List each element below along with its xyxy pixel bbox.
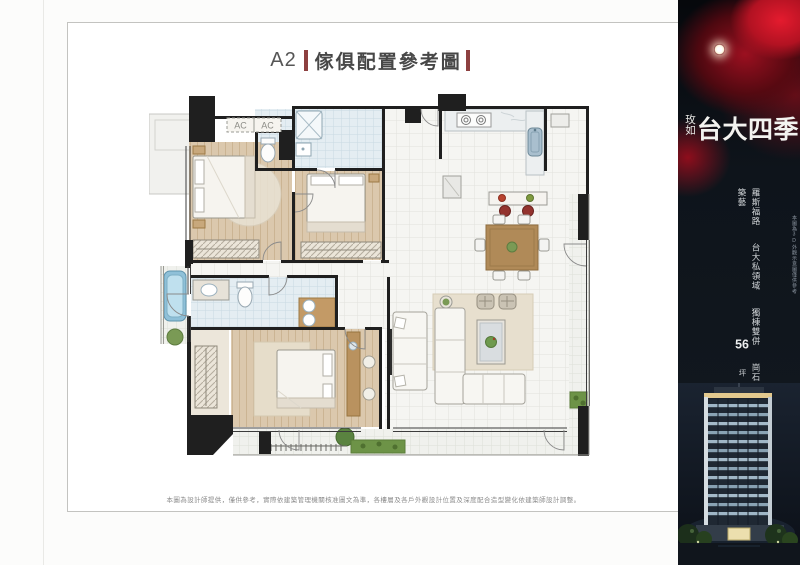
logo-name: 台大四季 — [697, 110, 799, 146]
ac-label-right: AC — [261, 121, 274, 131]
title-separator-bar — [466, 50, 470, 71]
title-text: 傢俱配置參考圖 — [315, 47, 462, 74]
scan-page-edge — [43, 0, 44, 565]
disclaimer-text: 本圖為設計師提供，僅供參考，實際依建築管理機關核准圖文為準，各樓層及各戶外觀設計… — [68, 494, 679, 504]
diamond-jewel-icon — [714, 44, 725, 55]
floorplan-frame: A2 傢俱配置參考圖 — [67, 22, 680, 512]
slogan-line: 羅斯福路 — [751, 188, 761, 226]
ac-label-left: AC — [234, 121, 247, 131]
ac-closet: AC AC — [227, 118, 281, 132]
project-logo: 玫如 台大四季 — [683, 110, 799, 146]
logo-prefix: 玫如 — [683, 114, 695, 135]
floor-plan: AC AC — [149, 94, 623, 471]
slogan-line: 獨棟雙併 — [751, 308, 761, 346]
page-title: A2 傢俱配置參考圖 — [68, 47, 679, 74]
building-night-view — [678, 383, 800, 565]
brand-panel: 玫如 台大四季 羅斯福路 台大私領域 獨棟雙併 崗石築藝 56 坪 68 坪 — [678, 0, 800, 565]
unit-code: A2 — [270, 49, 296, 72]
size-unit: 坪 — [738, 369, 747, 377]
building-render — [678, 383, 800, 565]
building-caption: 本圖為3D外觀示意圖僅供參考 — [791, 215, 798, 294]
slogan-line: 台大私領域 — [751, 243, 761, 291]
size-value: 56 — [735, 338, 749, 351]
scanned-brochure-page: A2 傢俱配置參考圖 — [0, 0, 800, 565]
title-separator-bar — [304, 50, 308, 71]
